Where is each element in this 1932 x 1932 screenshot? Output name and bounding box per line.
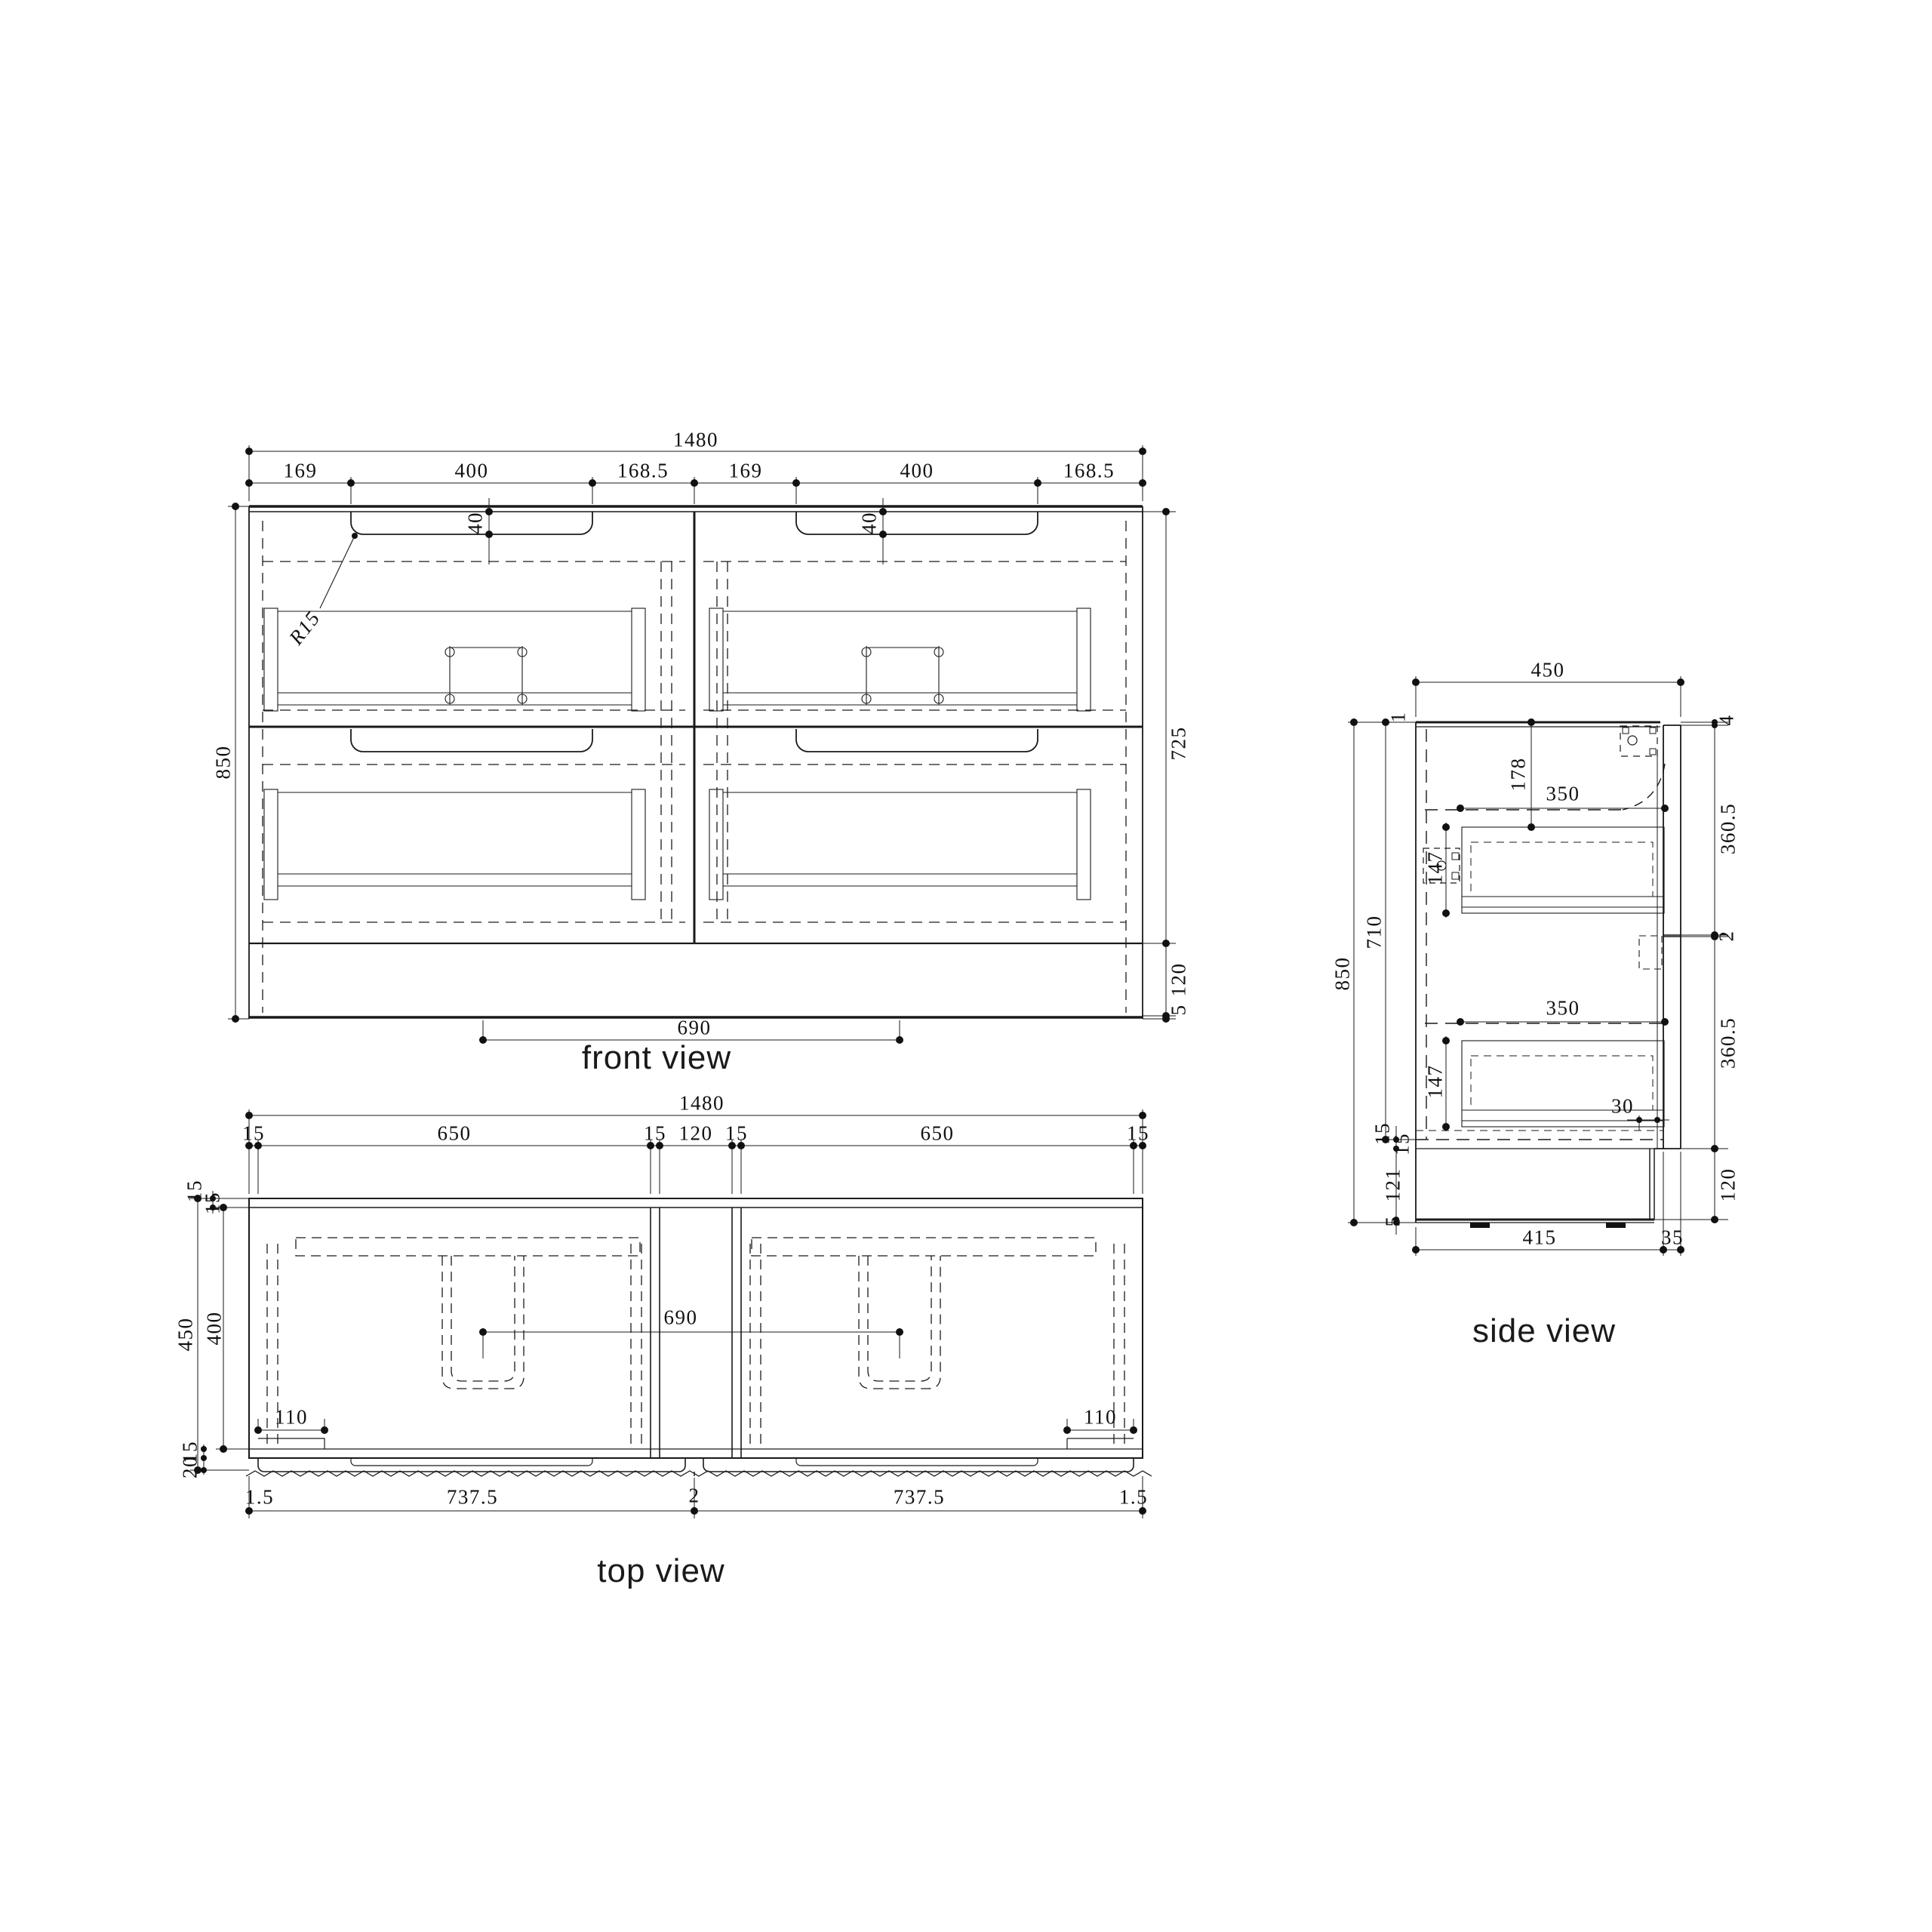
dim-top-drain-span: 690 xyxy=(664,1308,698,1328)
dim-top-bottom-edge-l: 1.5 xyxy=(245,1487,274,1508)
dim-top-seg-120: 120 xyxy=(679,1124,713,1144)
dim-side-kick-height: 120 xyxy=(1718,1168,1739,1202)
dim-side-kick-inset: 30 xyxy=(1611,1097,1634,1117)
dim-side-drawer-depth-1: 350 xyxy=(1546,784,1580,804)
dim-front-height-base: 5 xyxy=(1169,1004,1189,1016)
dim-side-bottom-15b: 15 xyxy=(1392,1133,1413,1155)
drawing-canvas xyxy=(0,0,1932,1932)
dim-side-drawer-top-offset: 178 xyxy=(1509,758,1529,792)
dim-side-base-depth: 415 xyxy=(1523,1228,1557,1248)
dim-front-drain-span: 690 xyxy=(678,1018,712,1038)
dim-top-seg-15b: 15 xyxy=(644,1124,666,1144)
dim-top-seg-650a: 650 xyxy=(438,1124,472,1144)
dim-top-seg-15c: 15 xyxy=(725,1124,748,1144)
dim-side-bottom-121: 121 xyxy=(1383,1168,1404,1202)
dim-side-front-height-2: 360.5 xyxy=(1718,1017,1739,1069)
side-view-title: side view xyxy=(1472,1312,1616,1350)
dim-side-front-thickness: 35 xyxy=(1661,1228,1684,1248)
dim-top-bottom-center: 2 xyxy=(689,1486,700,1506)
side-view-linework xyxy=(1348,676,1728,1256)
dim-top-width-total: 1480 xyxy=(679,1094,724,1114)
dim-top-bottom-front-r: 737.5 xyxy=(894,1487,945,1508)
front-view-title: front view xyxy=(582,1039,731,1077)
dim-side-front-height-1: 360.5 xyxy=(1718,803,1739,854)
dim-top-depth-inner: 400 xyxy=(205,1312,225,1346)
dim-top-seg-650b: 650 xyxy=(921,1124,955,1144)
dim-front-seg-left-gap2: 169 xyxy=(729,461,763,481)
dim-side-front-gap-top: 4 xyxy=(1717,715,1737,726)
dim-front-notch-depth: 40 xyxy=(466,512,486,534)
dim-side-drawer-depth-2: 350 xyxy=(1546,998,1580,1019)
dim-front-seg-inner-gap: 168.5 xyxy=(617,461,669,481)
dim-front-height-kick: 120 xyxy=(1169,963,1189,997)
dim-front-height-total: 850 xyxy=(214,746,234,780)
dim-top-seg-15a: 15 xyxy=(242,1124,265,1144)
dim-side-drawer-height-2: 147 xyxy=(1426,1065,1446,1099)
dim-side-depth-total: 450 xyxy=(1531,660,1565,681)
dim-top-back-15b: 15 xyxy=(203,1192,223,1214)
dim-side-front-gap-mid: 2 xyxy=(1717,931,1737,942)
dim-side-bottom-5: 5 xyxy=(1383,1216,1404,1227)
dim-front-notch-depth2: 40 xyxy=(860,512,880,534)
dim-top-bottom-front-l: 737.5 xyxy=(447,1487,498,1508)
dim-top-front-overhang-20: 20 xyxy=(180,1456,201,1478)
dim-side-height-carcass: 710 xyxy=(1364,915,1385,949)
dim-side-top-gap: 1 xyxy=(1389,712,1409,723)
top-view-title: top view xyxy=(597,1552,724,1590)
dim-front-width-total: 1480 xyxy=(673,430,718,451)
dim-front-height-body: 725 xyxy=(1169,727,1189,761)
dim-top-bottom-edge-r: 1.5 xyxy=(1119,1487,1148,1508)
dim-side-bottom-15a: 15 xyxy=(1373,1122,1393,1145)
front-view-linework xyxy=(228,445,1176,1044)
dim-top-seg-15d: 15 xyxy=(1127,1124,1149,1144)
dim-side-drawer-height-1: 147 xyxy=(1426,851,1446,885)
dim-top-corner-notch-left: 110 xyxy=(275,1407,308,1428)
dim-top-corner-notch-right: 110 xyxy=(1084,1407,1117,1428)
dim-front-seg-notch: 400 xyxy=(455,461,489,481)
dim-top-depth-total: 450 xyxy=(176,1318,196,1352)
drawing-sheet: 1480 169 400 168.5 169 400 168.5 40 40 R… xyxy=(0,0,1932,1932)
dim-side-height-total: 850 xyxy=(1333,957,1353,991)
dim-front-seg-inner-gap2: 168.5 xyxy=(1063,461,1115,481)
dim-front-seg-notch2: 400 xyxy=(900,461,934,481)
dim-front-seg-left-gap: 169 xyxy=(284,461,318,481)
